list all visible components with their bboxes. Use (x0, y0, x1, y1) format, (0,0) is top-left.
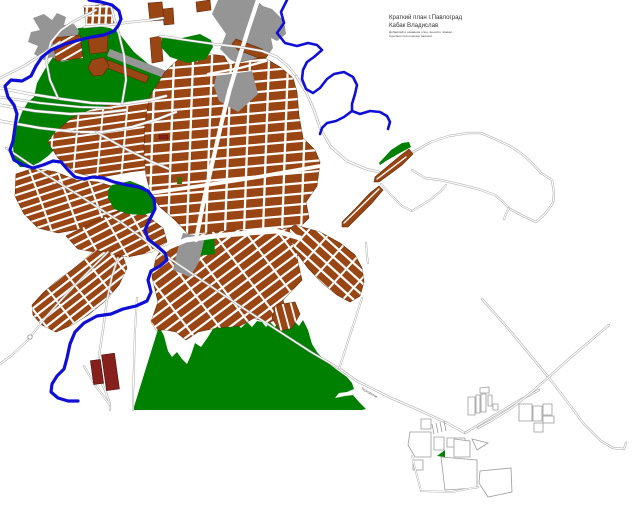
svg-text:Краткий план г.Павлоград: Краткий план г.Павлоград (389, 14, 463, 21)
svg-text:Кабак Владислав: Кабак Владислав (389, 22, 438, 29)
svg-text:Сделано при помощи Інкскалі: Сделано при помощи Інкскалі (389, 34, 432, 38)
svg-text:Шевченка: Шевченка (70, 132, 81, 134)
